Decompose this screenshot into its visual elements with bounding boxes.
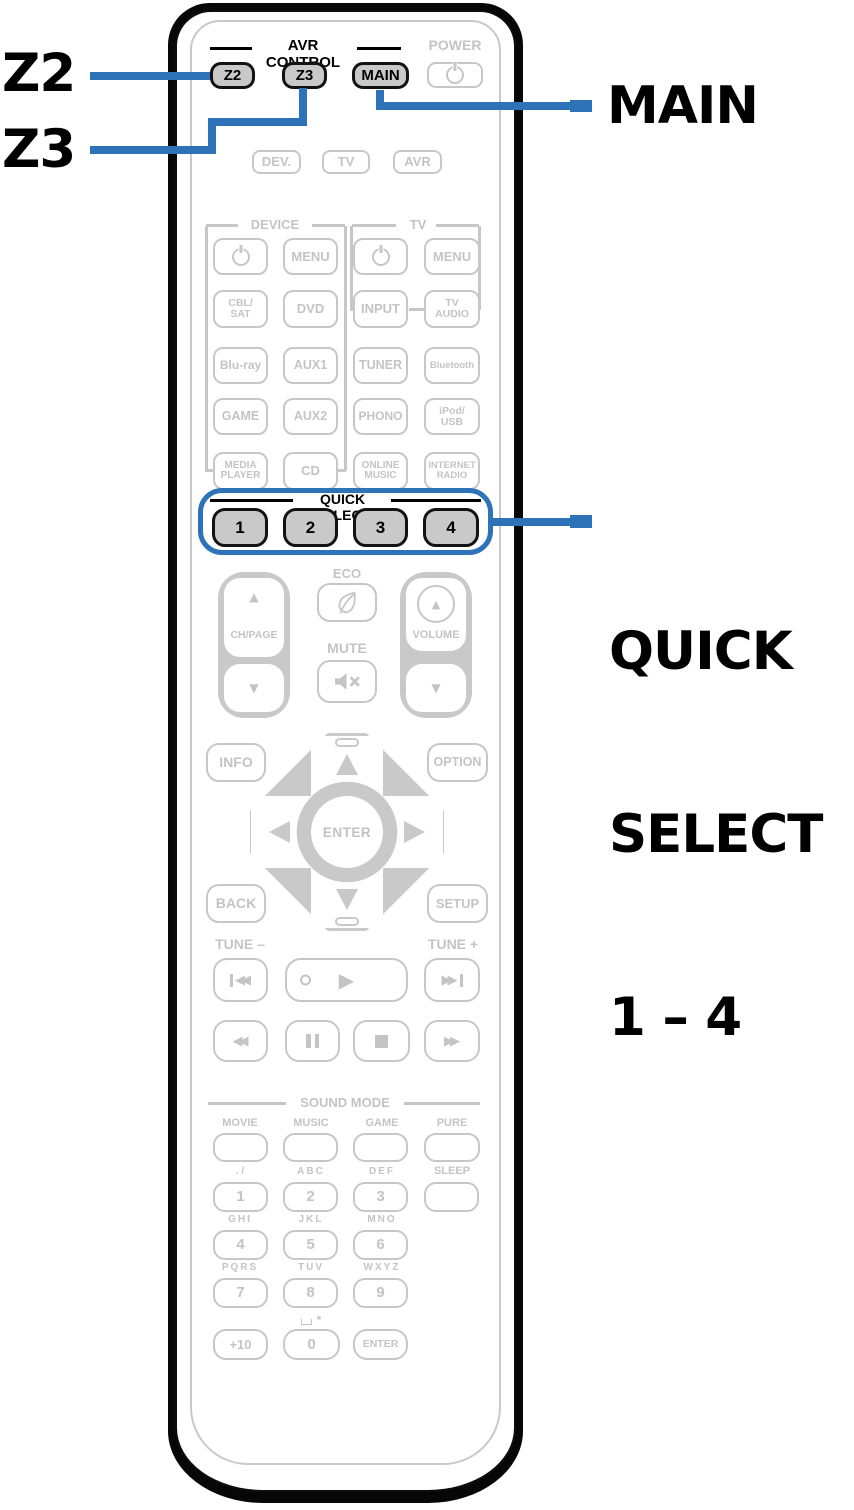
digit-2-button: 2	[283, 1182, 338, 1212]
dvd-button: DVD	[283, 290, 338, 328]
leaf-icon	[333, 589, 361, 617]
bluetooth-button: Bluetooth	[424, 347, 480, 384]
aux2-button: AUX2	[283, 398, 338, 435]
digit-0-button: 0	[283, 1329, 340, 1360]
aux1-button: AUX1	[283, 347, 338, 384]
tv-bracket-left	[350, 226, 353, 310]
sleep-label: SLEEP	[417, 1165, 487, 1177]
digit-3-button: 3	[353, 1182, 408, 1212]
z3-button: Z3	[282, 62, 327, 89]
quick-select-callout-line2: SELECT	[609, 804, 822, 865]
tuner-button: TUNER	[353, 347, 408, 384]
volume-label: VOLUME	[400, 629, 472, 641]
skip-forward-button: ▶▶	[424, 958, 480, 1002]
tv-power-button	[353, 238, 408, 275]
power-label: POWER	[427, 37, 483, 53]
key1-letters: . /	[205, 1166, 275, 1177]
enter-button-label: ENTER	[323, 825, 371, 840]
mode-tv-button: TV	[322, 150, 370, 174]
device-bracket-right	[344, 226, 347, 471]
mode-avr-button: AVR	[393, 150, 442, 174]
record-dot-icon	[300, 975, 311, 986]
skip-back-button: ◀◀	[213, 958, 268, 1002]
fast-forward-icon: ▶▶	[444, 1035, 460, 1048]
skip-forward-bar-icon	[460, 974, 463, 987]
rewind-icon: ◀◀	[233, 1035, 249, 1048]
up-arrow-icon: ▲	[249, 591, 258, 603]
sleep-button	[424, 1182, 479, 1212]
star-label: *	[317, 1315, 322, 1325]
quick-select-rule-left	[210, 499, 293, 502]
skip-back-icon: ◀◀	[235, 974, 251, 987]
power-button	[427, 62, 483, 88]
ch-page-up-button: ▲	[224, 578, 284, 657]
device-menu-button: MENU	[283, 238, 338, 275]
game-button: GAME	[213, 398, 268, 435]
sound-mode-rule-left	[208, 1102, 286, 1105]
play-button: ▶	[285, 958, 408, 1002]
digit-5-button: 5	[283, 1230, 338, 1260]
stop-button	[353, 1020, 410, 1062]
pure-button	[424, 1133, 480, 1162]
digit-8-button: 8	[283, 1278, 338, 1308]
z3-callout-line-v1	[299, 88, 307, 122]
main-callout-label: MAIN	[607, 78, 758, 134]
quick-select-rule-right	[391, 499, 481, 502]
device-rule-right	[312, 224, 345, 227]
quick-select-callout-line1: QUICK	[609, 621, 822, 682]
media-player-button: MEDIA PLAYER	[213, 452, 268, 490]
quick-select-2-button: 2	[283, 508, 338, 547]
device-bracket-right-stub	[338, 469, 346, 472]
device-bracket-left	[205, 226, 208, 471]
tv-header: TV	[398, 217, 438, 232]
quick-select-3-button: 3	[353, 508, 408, 547]
ch-page-rocker: ▲ CH/PAGE ▼	[218, 572, 290, 718]
sound-mode-header: SOUND MODE	[290, 1095, 400, 1110]
quick-select-4-button: 4	[423, 508, 479, 547]
quick-select-callout-line	[492, 518, 572, 526]
z2-button: Z2	[210, 62, 255, 89]
quick-select-1-button: 1	[212, 508, 268, 547]
device-rule-left	[206, 224, 238, 227]
down-arrow-icon: ▼	[249, 682, 258, 694]
mute-icon	[334, 672, 361, 691]
mute-button	[317, 660, 377, 703]
tv-menu-button: MENU	[424, 238, 480, 275]
ipod-usb-button: iPod/ USB	[424, 398, 480, 435]
key6-letters: MNO	[347, 1214, 417, 1225]
movie-label: MOVIE	[205, 1117, 275, 1129]
tv-rule-left	[352, 224, 396, 227]
z3-callout-line-h1	[208, 118, 307, 126]
tv-audio-button: TV AUDIO	[424, 290, 480, 328]
fast-forward-button: ▶▶	[424, 1020, 480, 1062]
tune-plus-label: TUNE +	[418, 936, 488, 952]
mute-label: MUTE	[317, 640, 377, 656]
tune-minus-label: TUNE –	[205, 936, 275, 952]
dpad: ENTER	[250, 733, 444, 931]
main-callout-line-h	[376, 102, 572, 110]
key8-letters: TUV	[276, 1262, 346, 1273]
stop-icon	[375, 1035, 388, 1048]
pause-button	[285, 1020, 340, 1062]
tv-power-icon	[372, 248, 390, 266]
tv-rule-right	[436, 224, 479, 227]
enter-key-button: ENTER	[353, 1329, 408, 1360]
play-icon: ▶	[339, 970, 354, 990]
music-button	[283, 1133, 338, 1162]
quick-select-callout-line-cap	[570, 515, 592, 528]
key5-letters: JKL	[276, 1214, 346, 1225]
plus-10-button: +10	[213, 1329, 268, 1360]
key7-letters: PQRS	[205, 1262, 275, 1273]
rewind-button: ◀◀	[213, 1020, 268, 1062]
key2-letters: ABC	[276, 1166, 346, 1177]
tv-mid-connector	[409, 308, 424, 311]
quick-select-callout-label: QUICK SELECT 1 – 4	[609, 499, 822, 1170]
digit-7-button: 7	[213, 1278, 268, 1308]
avr-control-rule-left	[210, 47, 252, 50]
pause-icon	[306, 1034, 311, 1048]
z2-callout-line	[90, 72, 210, 80]
ch-page-down-button: ▼	[224, 664, 284, 712]
power-icon	[446, 66, 464, 84]
pure-label: PURE	[417, 1117, 487, 1129]
digit-9-button: 9	[353, 1278, 408, 1308]
avr-control-rule-right	[357, 47, 401, 50]
volume-up-circle-icon: ▲	[417, 585, 455, 623]
key9-letters: WXYZ	[347, 1262, 417, 1273]
online-music-button: ONLINE MUSIC	[353, 452, 408, 490]
game-label: GAME	[347, 1117, 417, 1129]
dpad-top-pill	[336, 739, 358, 746]
device-power-icon	[232, 248, 250, 266]
digit-1-button: 1	[213, 1182, 268, 1212]
z3-callout-line-h2	[90, 146, 216, 154]
up-arrow-icon: ▲	[432, 599, 440, 610]
eco-button	[317, 583, 377, 622]
key3-letters: DEF	[347, 1166, 417, 1177]
cbl-sat-button: CBL/ SAT	[213, 290, 268, 328]
movie-button	[213, 1133, 268, 1162]
ch-page-label: CH/PAGE	[218, 629, 290, 641]
skip-forward-icon: ▶▶	[442, 974, 458, 987]
digit-4-button: 4	[213, 1230, 268, 1260]
main-callout-line-cap	[570, 100, 592, 112]
space-icon	[301, 1319, 312, 1325]
manual-remote-diagram: AVR CONTROL POWER Z2 Z3 MAIN DEV. TV AVR…	[0, 0, 854, 1510]
key4-letters: GHI	[205, 1214, 275, 1225]
zero-key-label: *	[276, 1311, 346, 1325]
skip-back-bar-icon	[230, 974, 233, 987]
blu-ray-button: Blu-ray	[213, 347, 268, 384]
input-button: INPUT	[353, 290, 408, 328]
device-bracket-left-stub	[205, 469, 213, 472]
z2-callout-label: Z2	[2, 46, 75, 102]
game-mode-button	[353, 1133, 408, 1162]
device-power-button	[213, 238, 268, 275]
dpad-bottom-pill	[336, 918, 358, 925]
mode-dev-button: DEV.	[252, 150, 301, 174]
music-label: MUSIC	[276, 1117, 346, 1129]
digit-6-button: 6	[353, 1230, 408, 1260]
quick-select-callout-line3: 1 – 4	[609, 987, 822, 1048]
volume-down-button: ▼	[406, 664, 466, 712]
main-button: MAIN	[352, 62, 409, 89]
eco-label: ECO	[317, 566, 377, 581]
cd-button: CD	[283, 452, 338, 490]
phono-button: PHONO	[353, 398, 408, 435]
internet-radio-button: INTERNET RADIO	[424, 452, 480, 490]
volume-rocker: ▲ VOLUME ▼	[400, 572, 472, 718]
sound-mode-rule-right	[404, 1102, 480, 1105]
z3-callout-label: Z3	[2, 122, 75, 178]
device-header: DEVICE	[240, 217, 310, 232]
down-arrow-icon: ▼	[431, 682, 440, 694]
